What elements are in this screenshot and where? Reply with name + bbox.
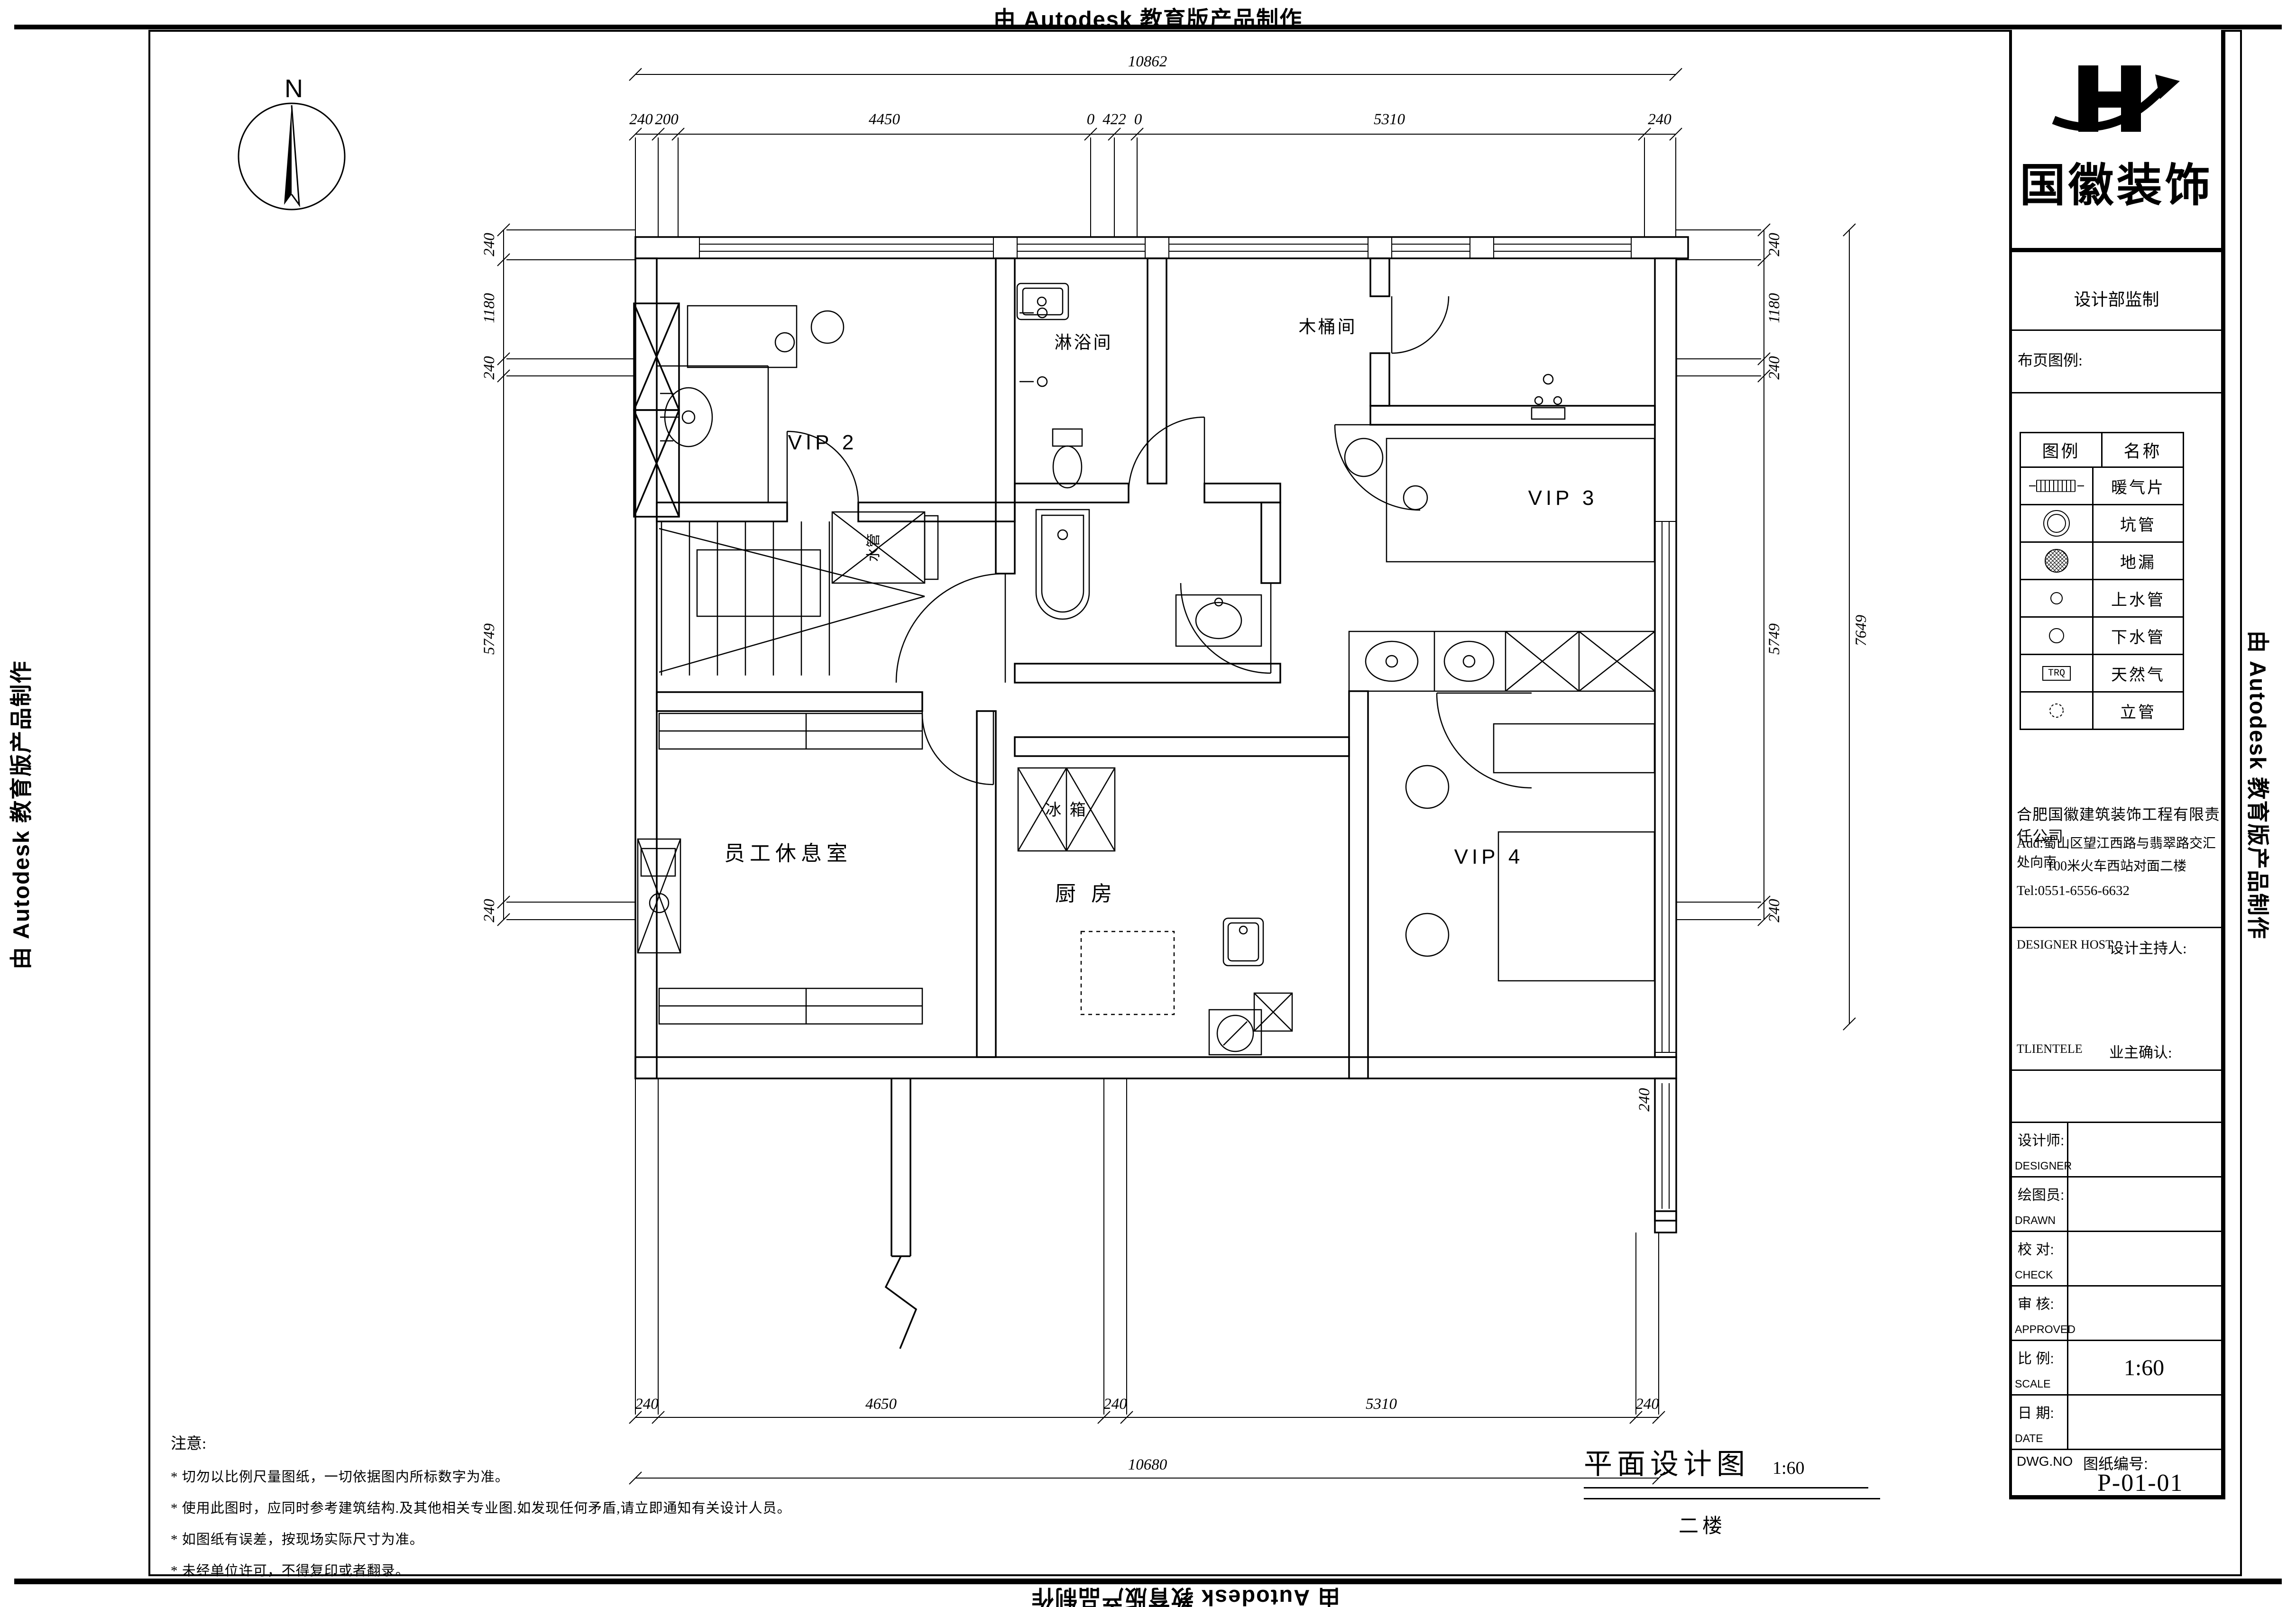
legend-row: 上水管 [2021, 579, 2183, 616]
floor-drain-icon [2021, 543, 2094, 579]
clientele-zh: 业主确认: [2109, 1041, 2172, 1062]
row-en: SCALE [2015, 1378, 2050, 1390]
row-value [2067, 1396, 2221, 1449]
room-label-shower: 淋浴间 [1055, 333, 1113, 352]
caption-underline-1 [1584, 1487, 1868, 1488]
dim-top-5: 0 [1134, 111, 1142, 128]
caption-title: 平面设计图 [1584, 1441, 1750, 1482]
divider [2012, 1069, 2221, 1071]
floor-plan: N [0, 0, 2296, 1607]
title-block: 国徽装饰 设计部监制 布页图例: 图例 名称 暖气片 [2009, 30, 2225, 1499]
designer-host-zh: 设计主持人: [2109, 936, 2187, 958]
room-label-kitchen: 厨 房 [1055, 882, 1117, 905]
table-row-designer: 设计师: DESIGNER [2012, 1122, 2221, 1178]
scale-value: 1:60 [2067, 1341, 2221, 1394]
drawing-caption: 平面设计图 1:60 二楼 [1584, 1441, 1906, 1539]
caption-scale: 1:60 [1773, 1458, 1805, 1479]
legend-row: 下水管 [2021, 616, 2183, 654]
note-item: * 使用此图时，应同时参考建筑结构.及其他相关专业图.如发现任何矛盾,请立即通知… [171, 1497, 835, 1517]
legend-name: 地漏 [2094, 549, 2183, 573]
north-arrow-icon [239, 103, 345, 210]
row-zh: 日 期: [2018, 1401, 2054, 1422]
legend-header-symbol: 图例 [2021, 433, 2103, 466]
signature-table: 设计师: DESIGNER 绘图员: DRAWN 校 对: CHECK 审 核:… [2012, 1122, 2221, 1450]
row-zh: 比 例: [2018, 1347, 2054, 1368]
divider [2012, 927, 2221, 928]
row-value [2067, 1178, 2221, 1231]
dim-top-0: 240 [629, 111, 653, 128]
legend-row: 地漏 [2021, 541, 2183, 579]
row-value [2067, 1287, 2221, 1340]
row-zh: 绘图员: [2018, 1183, 2064, 1204]
row-en: DRAWN [2015, 1214, 2056, 1227]
dim-left-4: 240 [481, 899, 498, 922]
plan-windows [699, 237, 1676, 1209]
legend-title: 布页图例: [2018, 348, 2083, 370]
supply-pipe-icon [2021, 580, 2094, 616]
dim-bottom-1: 4650 [865, 1396, 897, 1413]
label-shaft: 水管 [866, 533, 882, 562]
radiator-icon [2021, 468, 2094, 504]
legend-name: 坑管 [2094, 512, 2183, 535]
row-zh: 设计师: [2018, 1129, 2064, 1150]
label-fridge: 冰 箱 [1045, 801, 1087, 819]
dim-right-0: 240 [1766, 233, 1783, 256]
pit-pipe-icon [2021, 505, 2094, 541]
caption-floor: 二楼 [1650, 1510, 1754, 1539]
row-en: CHECK [2015, 1269, 2053, 1281]
dim-bottom-total: 10680 [1128, 1456, 1167, 1473]
notes-block: 注意: * 切勿以比例尺量图纸，一切依据图内所标数字为准。 * 使用此图时，应同… [171, 1431, 835, 1591]
legend-name: 上水管 [2094, 587, 2183, 610]
dim-top-4: 422 [1102, 111, 1126, 128]
legend-name: 天然气 [2094, 662, 2183, 685]
note-item: * 如图纸有误差，按现场实际尺寸为准。 [171, 1528, 835, 1548]
dim-left-2: 240 [481, 356, 498, 380]
legend-table: 图例 名称 暖气片 坑管 [2020, 432, 2184, 730]
natural-gas-icon: TRQ [2021, 655, 2094, 691]
company-address-2: 100米火车西站对面二楼 [2047, 856, 2186, 875]
legend-name: 暖气片 [2094, 475, 2183, 498]
legend-name: 下水管 [2094, 624, 2183, 648]
row-zh: 审 核: [2018, 1292, 2054, 1313]
note-item: * 未经单位许可，不得复印或者翻录。 [171, 1560, 835, 1580]
room-label-vip3: VIP 3 [1528, 486, 1598, 510]
dim-right-4: 240 [1766, 899, 1783, 922]
north-label: N [285, 74, 303, 103]
plan-walls [634, 237, 1688, 1349]
dim-left-0: 240 [481, 233, 498, 256]
dim-stub: 240 [1636, 1088, 1653, 1112]
note-item: * 切勿以比例尺量图纸，一切依据图内所标数字为准。 [171, 1466, 835, 1486]
dim-right-2: 240 [1766, 356, 1783, 380]
plan-stairs [659, 512, 938, 676]
row-en: APPROVED [2015, 1323, 2076, 1336]
row-value [2067, 1123, 2221, 1176]
dim-top-3: 0 [1087, 111, 1095, 128]
legend-row: 坑管 [2021, 504, 2183, 541]
dim-top-7: 240 [1648, 111, 1671, 128]
legend-header-name: 名称 [2103, 438, 2183, 462]
riser-pipe-icon [2021, 693, 2094, 729]
room-label-barrel: 木桶间 [1299, 317, 1357, 337]
room-label-vip4: VIP 4 [1454, 845, 1524, 868]
table-row-check: 校 对: CHECK [2012, 1232, 2221, 1287]
dim-left-3: 5749 [481, 623, 498, 655]
room-label-staff: 员工休息室 [724, 842, 852, 865]
gas-symbol-text: TRQ [2042, 666, 2071, 681]
dim-right-3: 5749 [1766, 623, 1783, 655]
caption-underline-2 [1584, 1498, 1880, 1499]
row-zh: 校 对: [2018, 1238, 2054, 1259]
dim-right-1: 1180 [1766, 293, 1783, 323]
dim-bottom-0: 240 [635, 1396, 659, 1413]
plan-doors [787, 296, 1532, 788]
divider [2012, 248, 2221, 252]
dim-top-total: 10862 [1128, 53, 1167, 70]
table-row-approved: 审 核: APPROVED [2012, 1287, 2221, 1341]
legend-row: 立管 [2021, 691, 2183, 729]
legend-row: TRQ 天然气 [2021, 654, 2183, 691]
table-row-drawn: 绘图员: DRAWN [2012, 1178, 2221, 1232]
dim-bottom-3: 5310 [1366, 1396, 1397, 1413]
company-tel: Tel:0551-6556-6632 [2017, 883, 2130, 899]
dim-top-6: 5310 [1374, 111, 1405, 128]
dwg-number-section: DWG.NO 图纸编号: P-01-01 [2012, 1442, 2221, 1494]
dim-left-1: 1180 [481, 293, 498, 323]
clientele-en: TLIENTELE [2017, 1042, 2083, 1056]
row-en: DESIGNER [2015, 1160, 2072, 1172]
legend-name: 立管 [2094, 699, 2183, 722]
company-brand: 国徽装饰 [2012, 148, 2221, 214]
dwg-en: DWG.NO [2017, 1454, 2073, 1469]
dim-top-1: 200 [655, 111, 679, 128]
table-row-scale: 比 例: SCALE 1:60 [2012, 1341, 2221, 1396]
company-logo-icon [2050, 63, 2183, 144]
dim-top-2: 4450 [869, 111, 900, 128]
dim-bottom-2: 240 [1103, 1396, 1127, 1413]
notes-title: 注意: [171, 1431, 835, 1453]
dim-bottom-4: 240 [1635, 1396, 1659, 1413]
plan-dimension-labels: 10862 240 200 4450 0 422 0 5310 240 240 … [481, 53, 1870, 1473]
designer-host-en: DESIGNER HOST [2017, 938, 2113, 952]
room-label-vip2: VIP 2 [788, 431, 858, 454]
plan-fixtures [638, 283, 1655, 1055]
legend-header-row: 图例 名称 [2021, 433, 2183, 466]
divider [2012, 329, 2221, 331]
dwg-value: P-01-01 [2097, 1469, 2184, 1497]
legend-row: 暖气片 [2021, 466, 2183, 504]
plan-dimensions [497, 68, 1855, 1484]
drain-pipe-icon [2021, 618, 2094, 654]
row-value [2067, 1232, 2221, 1285]
divider [2012, 392, 2221, 393]
dim-right-total: 7649 [1853, 615, 1870, 646]
supervision-label: 设计部监制 [2012, 286, 2221, 310]
drawing-sheet: 由 Autodesk 教育版产品制作 由 Autodesk 教育版产品制作 由 … [0, 0, 2296, 1607]
